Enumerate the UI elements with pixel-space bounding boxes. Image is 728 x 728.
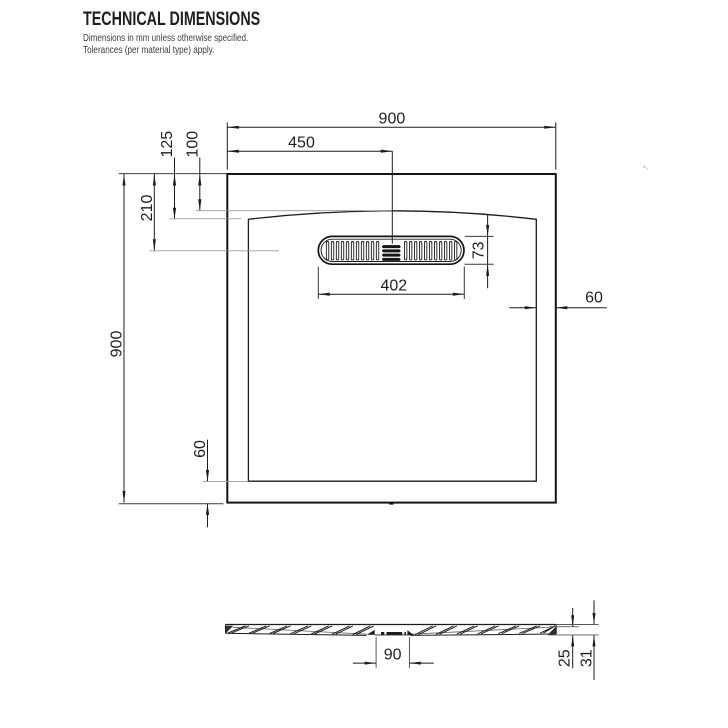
svg-text:60: 60	[192, 440, 209, 458]
svg-text:900: 900	[109, 331, 126, 358]
svg-text:402: 402	[380, 277, 407, 294]
svg-text:60: 60	[585, 290, 603, 307]
svg-text:100: 100	[184, 131, 201, 158]
svg-text:900: 900	[379, 111, 406, 128]
svg-text:25: 25	[557, 649, 574, 667]
svg-text:210: 210	[139, 195, 156, 222]
svg-text:125: 125	[159, 131, 176, 158]
svg-text:31: 31	[579, 649, 596, 667]
svg-text:73: 73	[471, 241, 488, 259]
svg-text:450: 450	[288, 135, 315, 152]
svg-text:90: 90	[384, 647, 402, 664]
